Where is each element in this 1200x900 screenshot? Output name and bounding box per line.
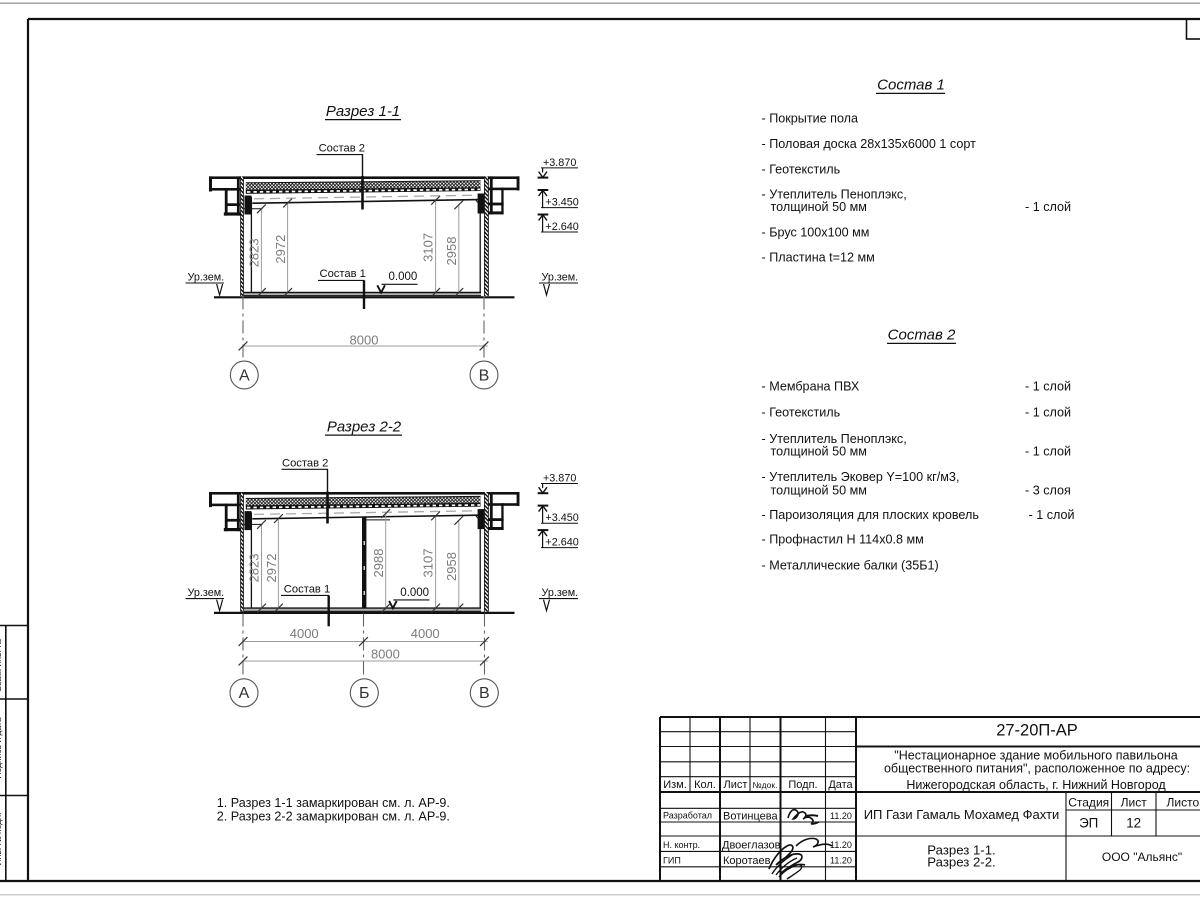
- svg-text:2. Разрез 2-2 замаркирован см.: 2. Разрез 2-2 замаркирован см. л. АР-9.: [217, 810, 450, 824]
- svg-text:толщиной 50 мм: толщиной 50 мм: [771, 445, 867, 459]
- svg-text:Двоеглазов: Двоеглазов: [722, 840, 781, 852]
- svg-text:Разработал: Разработал: [663, 811, 712, 821]
- svg-text:- Геотекстиль: - Геотекстиль: [762, 162, 841, 176]
- svg-text:11.20: 11.20: [830, 811, 852, 821]
- svg-text:- Металлические балки (35Б1): - Металлические балки (35Б1): [762, 559, 939, 573]
- svg-text:2958: 2958: [444, 237, 459, 266]
- svg-text:- Брус 100х100 мм: - Брус 100х100 мм: [762, 225, 870, 239]
- svg-text:Инв. № подл.: Инв. № подл.: [0, 813, 3, 866]
- svg-text:2972: 2972: [264, 554, 279, 583]
- svg-text:2823: 2823: [246, 554, 261, 583]
- svg-text:Лист: Лист: [1121, 796, 1148, 810]
- svg-text:Состав 1: Состав 1: [284, 583, 330, 595]
- svg-text:Ур.зем.: Ур.зем.: [542, 271, 579, 283]
- svg-text:Состав 2: Состав 2: [319, 142, 365, 154]
- svg-text:+2.640: +2.640: [545, 537, 578, 549]
- svg-text:Нижегородская область, г. Нижн: Нижегородская область, г. Нижний Новгоро…: [906, 778, 1166, 792]
- svg-text:- 3 слоя: - 3 слоя: [1025, 483, 1071, 497]
- svg-text:- Геотекстиль: - Геотекстиль: [762, 406, 841, 420]
- svg-text:ИП Гази Гамаль Мохамед Фахти: ИП Гази Гамаль Мохамед Фахти: [864, 807, 1060, 822]
- svg-text:Разрез 2-2.: Разрез 2-2.: [927, 855, 995, 870]
- svg-text:8000: 8000: [371, 646, 400, 661]
- svg-text:толщиной 50 мм: толщиной 50 мм: [771, 200, 867, 214]
- svg-text:- Пароизоляция для плоских кро: - Пароизоляция для плоских кровель: [762, 508, 980, 522]
- svg-text:Изм.: Изм.: [663, 779, 687, 791]
- svg-text:Разрез 2-2: Разрез 2-2: [327, 419, 402, 436]
- svg-text:А: А: [239, 367, 250, 384]
- svg-text:Вотинцева: Вотинцева: [723, 810, 778, 822]
- svg-text:Ур.зем.: Ур.зем.: [188, 587, 225, 599]
- svg-text:- Профнастил Н 114х0.8 мм: - Профнастил Н 114х0.8 мм: [762, 532, 924, 546]
- svg-text:Стадия: Стадия: [1068, 796, 1109, 810]
- svg-text:Н. контр.: Н. контр.: [663, 840, 700, 850]
- svg-text:0.000: 0.000: [389, 271, 418, 283]
- svg-text:12: 12: [1126, 816, 1141, 831]
- svg-text:Подп.: Подп.: [788, 779, 817, 791]
- svg-text:Состав 1: Состав 1: [877, 77, 945, 94]
- svg-text:Лист: Лист: [724, 779, 748, 791]
- svg-text:8000: 8000: [350, 333, 379, 348]
- svg-text:Подпись и дата: Подпись и дата: [0, 717, 3, 778]
- svg-text:Взам. инв. №: Взам. инв. №: [0, 639, 3, 692]
- svg-text:- Покрытие пола: - Покрытие пола: [762, 111, 859, 125]
- svg-text:4000: 4000: [411, 626, 440, 641]
- svg-text:общественного питания", распол: общественного питания", расположенное по…: [884, 762, 1190, 776]
- svg-text:- 1 слой: - 1 слой: [1025, 406, 1071, 420]
- svg-text:+3.870: +3.870: [543, 473, 576, 485]
- svg-text:27-20П-АР: 27-20П-АР: [996, 722, 1078, 740]
- svg-text:ГИП: ГИП: [663, 855, 681, 865]
- svg-text:"Нестационарное здание мобильн: "Нестационарное здание мобильного павиль…: [894, 749, 1177, 763]
- svg-text:Состав 2: Состав 2: [282, 457, 328, 469]
- svg-text:4000: 4000: [290, 626, 319, 641]
- svg-text:ООО "Альянс": ООО "Альянс": [1102, 850, 1182, 864]
- svg-text:А: А: [239, 685, 250, 702]
- svg-text:2823: 2823: [246, 238, 261, 267]
- svg-text:Дата: Дата: [828, 779, 853, 791]
- svg-text:11.20: 11.20: [830, 856, 852, 866]
- svg-text:+3.870: +3.870: [543, 157, 576, 169]
- svg-text:- 1 слой: - 1 слой: [1025, 445, 1071, 459]
- svg-text:- Мембрана ПВХ: - Мембрана ПВХ: [762, 379, 860, 393]
- svg-text:В: В: [479, 685, 490, 702]
- svg-text:3107: 3107: [421, 549, 436, 578]
- svg-text:Разрез 1-1: Разрез 1-1: [326, 103, 400, 120]
- svg-text:толщиной 50 мм: толщиной 50 мм: [771, 483, 867, 497]
- svg-text:Б: Б: [359, 685, 370, 702]
- svg-text:- Пластина t=12 мм: - Пластина t=12 мм: [762, 251, 875, 265]
- svg-text:- 1 слой: - 1 слой: [1025, 379, 1071, 393]
- svg-text:Состав 2: Состав 2: [888, 327, 956, 344]
- svg-text:Кол.: Кол.: [694, 779, 716, 791]
- svg-text:11.20: 11.20: [830, 840, 852, 850]
- svg-text:- Утеплитель Эковер Y=100 кг/м: - Утеплитель Эковер Y=100 кг/м3,: [762, 470, 960, 484]
- svg-text:2958: 2958: [444, 552, 459, 581]
- svg-text:- 1 слой: - 1 слой: [1029, 508, 1075, 522]
- svg-text:0.000: 0.000: [400, 587, 429, 599]
- svg-text:+2.640: +2.640: [545, 221, 578, 233]
- svg-text:№док.: №док.: [753, 780, 778, 790]
- svg-text:Ур.зем.: Ур.зем.: [188, 271, 225, 283]
- svg-text:- Половая доска 28х135х6000 1: - Половая доска 28х135х6000 1 сорт: [762, 137, 977, 151]
- svg-text:Коротаев: Коротаев: [723, 855, 771, 867]
- svg-text:2988: 2988: [371, 549, 386, 578]
- svg-text:2972: 2972: [273, 235, 288, 264]
- svg-text:+3.450: +3.450: [545, 512, 578, 524]
- svg-text:ЭП: ЭП: [1079, 816, 1098, 831]
- svg-text:- 1 слой: - 1 слой: [1025, 200, 1071, 214]
- svg-text:+3.450: +3.450: [545, 197, 578, 209]
- svg-text:Листов: Листов: [1167, 796, 1200, 810]
- svg-text:Ур.зем.: Ур.зем.: [542, 587, 579, 599]
- svg-text:Состав 1: Состав 1: [320, 268, 366, 280]
- svg-text:В: В: [479, 367, 490, 384]
- svg-text:3107: 3107: [421, 233, 436, 262]
- svg-text:1. Разрез 1-1 замаркирован см.: 1. Разрез 1-1 замаркирован см. л. АР-9.: [217, 796, 450, 810]
